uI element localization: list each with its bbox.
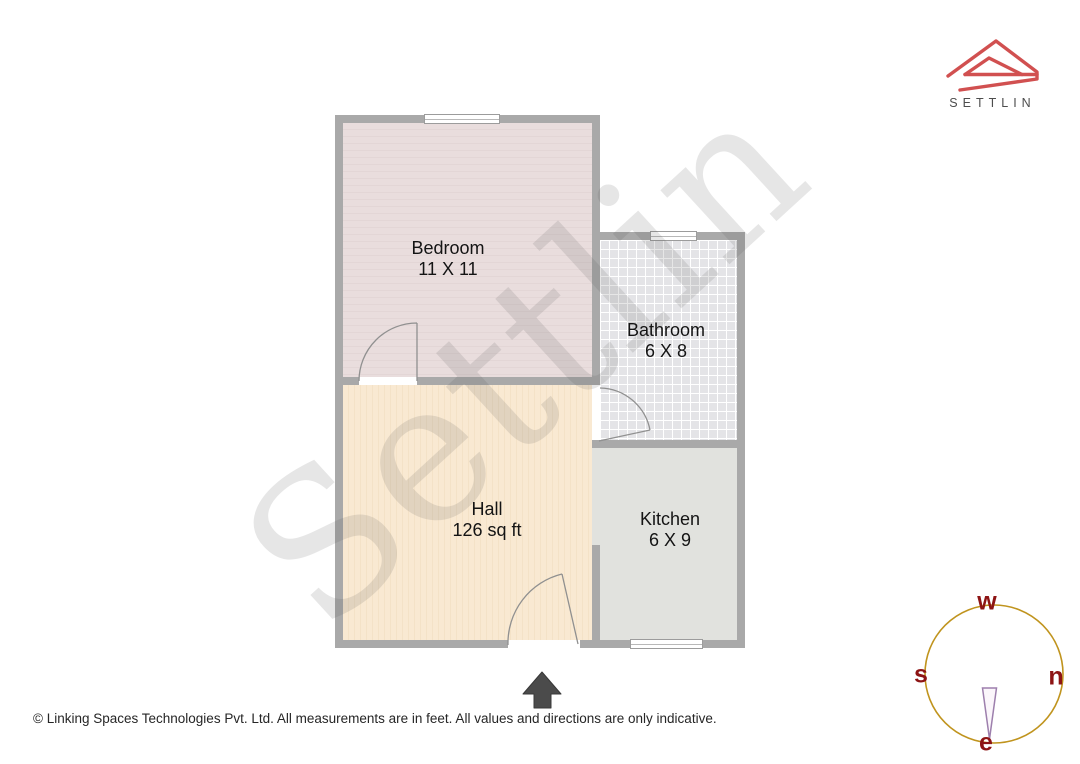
- kitchen-label: Kitchen 6 X 9: [600, 509, 740, 551]
- room-size: 6 X 8: [645, 341, 687, 361]
- footer-copyright: © Linking Spaces Technologies Pvt. Ltd. …: [33, 711, 717, 726]
- floorplan-page: Settlin Bedroom 11 X 11 Bathroom 6 X 8 H…: [0, 0, 1080, 764]
- compass-icon: w s n e: [900, 575, 1080, 764]
- compass-label-south: s: [914, 663, 928, 688]
- hall-label: Hall 126 sq ft: [387, 499, 587, 541]
- window-pane: [631, 644, 702, 645]
- window-pane: [425, 119, 499, 120]
- entrance-arrow-icon: [523, 672, 561, 708]
- bedroom-label: Bedroom 11 X 11: [348, 238, 548, 280]
- settlin-logo: SETTLIN: [915, 28, 1065, 116]
- room-size: 126 sq ft: [452, 520, 521, 540]
- room-name: Hall: [471, 499, 502, 519]
- room-size: 11 X 11: [418, 259, 477, 279]
- compass-label-north: n: [1048, 665, 1063, 690]
- roof-logo-icon: [930, 28, 1050, 92]
- bathroom-label: Bathroom 6 X 8: [596, 320, 736, 362]
- compass-label-west: w: [977, 590, 996, 615]
- wall-bathroom-kitchen: [592, 440, 745, 448]
- room-name: Bathroom: [627, 320, 705, 340]
- room-name: Bedroom: [411, 238, 484, 258]
- bedroom-window: [424, 114, 500, 124]
- kitchen-window: [630, 639, 703, 649]
- room-size: 6 X 9: [649, 530, 691, 550]
- compass-circle: [925, 605, 1063, 743]
- compass-label-east: e: [979, 731, 993, 756]
- room-name: Kitchen: [640, 509, 700, 529]
- wall-kitchen-left: [592, 545, 600, 648]
- logo-wordmark: SETTLIN: [915, 96, 1065, 110]
